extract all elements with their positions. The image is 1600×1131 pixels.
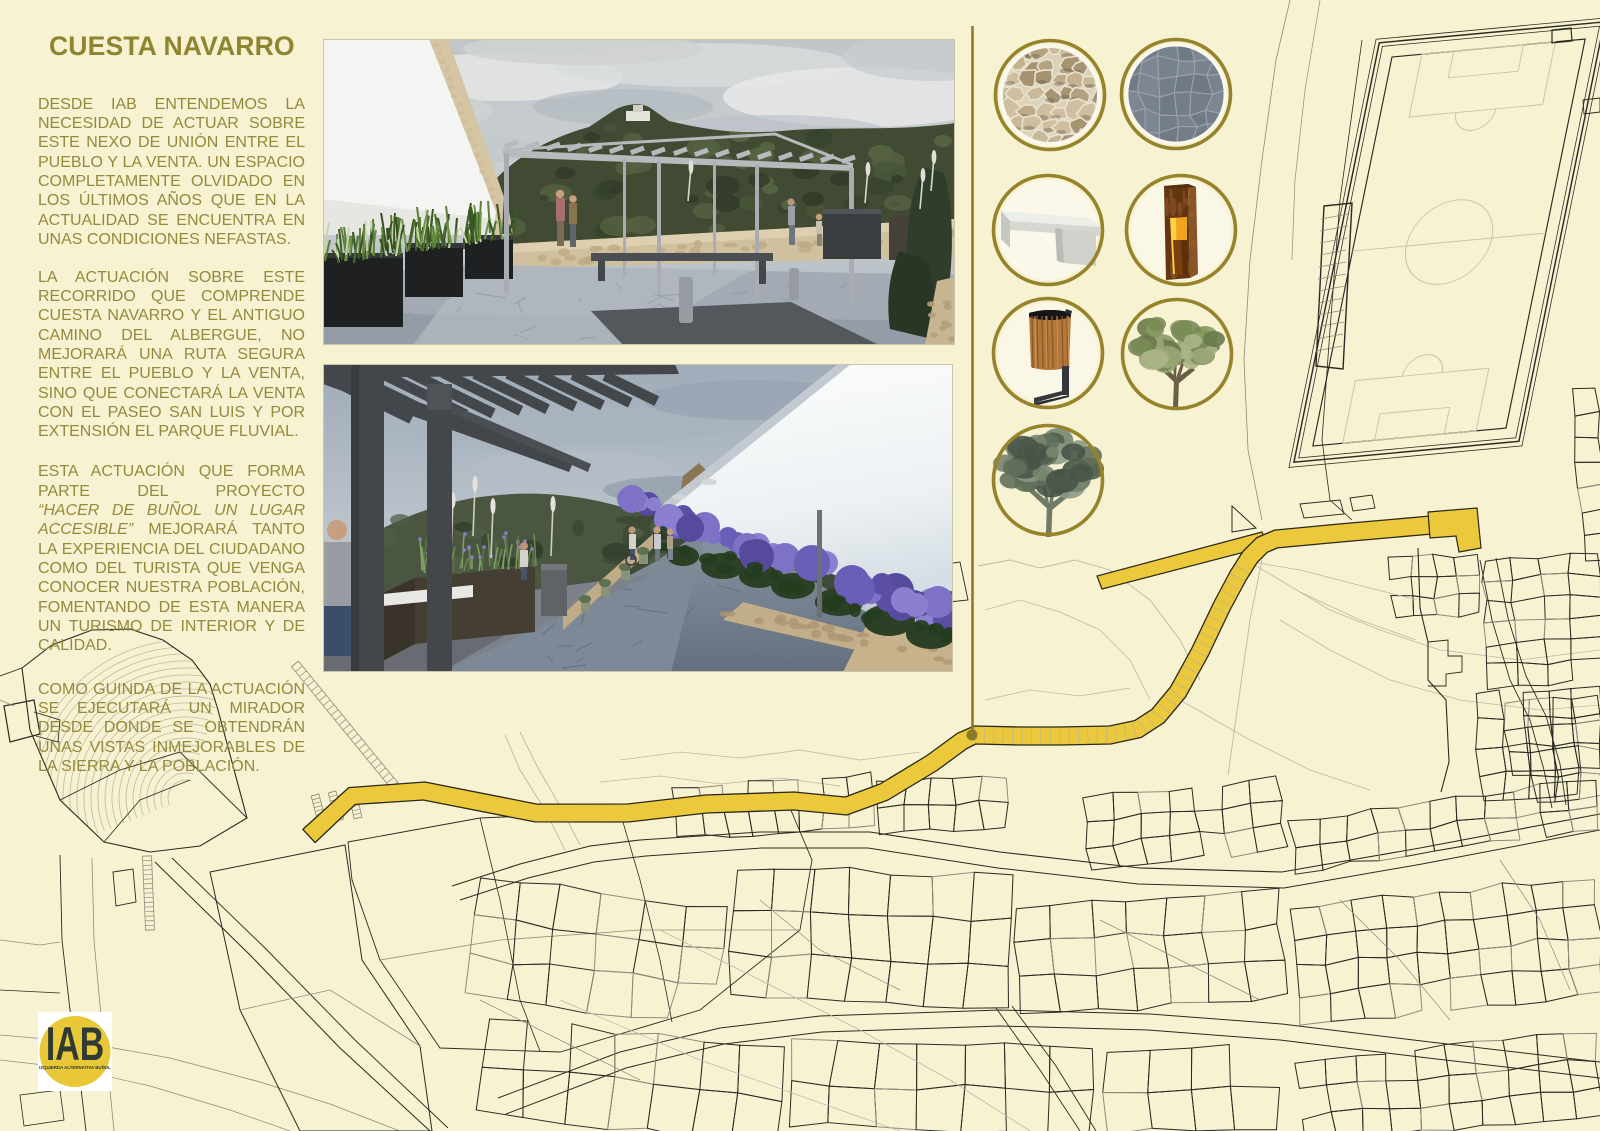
svg-text:IAB: IAB [46, 1018, 104, 1071]
svg-text:IZQUIERDA ALTERNATIVA BUÑOL: IZQUIERDA ALTERNATIVA BUÑOL [39, 1065, 111, 1070]
